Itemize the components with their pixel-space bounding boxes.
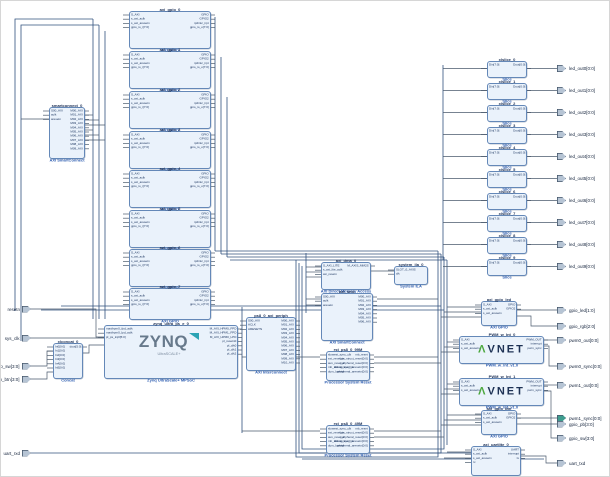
block-pin[interactable]: GPIO2 <box>506 416 515 420</box>
block-zynq_ultra_ps_e_0[interactable]: zynq_ultra_ps_e_0Zynq UltraScale+ MPSoCm… <box>104 325 238 379</box>
port-label: led_out2[0:0] <box>569 110 595 115</box>
block-pin[interactable]: gpio_io_i[7:0] <box>131 225 150 229</box>
block-system_ila_0[interactable]: system_ila_0System ILASLOT_0_AXISclk <box>394 266 428 285</box>
port-pentagon-icon <box>557 131 566 138</box>
block-pin[interactable]: Din[7:0] <box>489 107 499 111</box>
block-pin[interactable]: Dout[0:0] <box>513 195 525 199</box>
port-label: led_out4[0:0] <box>569 154 595 159</box>
port-label: led_out9[0:0] <box>569 264 595 269</box>
output-port-led_out5[0:0][interactable]: led_out5[0:0] <box>557 175 566 182</box>
port-pentagon-icon <box>22 335 31 342</box>
block-pin[interactable]: gpio_io_o[7:0] <box>190 146 209 150</box>
port-label: dip_sw[3:0] <box>0 364 20 369</box>
block-pin[interactable]: Dout[0:0] <box>513 173 525 177</box>
port-pentagon-icon <box>557 435 566 442</box>
block-xlslice_4[interactable]: xlslice_4SliceDin[7:0]Dout[0:0] <box>487 149 527 166</box>
block-axi_gpio_btn[interactable]: axi_gpio_btnAXI GPIOS_AXIs_axi_aclks_axi… <box>481 410 517 435</box>
block-pin[interactable]: pl_ps_irq0[5:0] <box>106 335 133 339</box>
port-pentagon-icon <box>557 307 566 314</box>
port-pentagon-icon <box>557 109 566 116</box>
port-label: gpio_led[1:0] <box>569 308 595 313</box>
port-label: push_btn[3:0] <box>0 377 20 382</box>
block-axi_uartlite_0[interactable]: axi_uartlite_0AXI UartliteS_AXIs_axi_acl… <box>471 446 521 476</box>
block-pin[interactable]: ARESETN <box>248 327 262 331</box>
block-pin[interactable]: s_axi_aresetn <box>483 311 502 315</box>
output-port-led_out3[0:0][interactable]: led_out3[0:0] <box>557 131 566 138</box>
block-xlslice_0[interactable]: xlslice_0SliceDin[7:0]Dout[0:0] <box>487 61 527 78</box>
block-xlslice_2[interactable]: xlslice_2SliceDin[7:0]Dout[0:0] <box>487 105 527 122</box>
block-pin[interactable]: gpio_io_i[7:0] <box>131 146 150 150</box>
block-pin[interactable]: Din[7:0] <box>489 173 499 177</box>
port-label: led_out1[0:0] <box>569 88 595 93</box>
block-pin[interactable]: s_axi_aresetn <box>483 420 502 424</box>
block-pin[interactable]: M10_AXI <box>282 361 294 365</box>
block-pin[interactable]: axi_resetn <box>323 272 343 276</box>
input-port-sys_clk[interactable]: sys_clk <box>22 335 31 342</box>
port-pentagon-icon <box>557 421 566 428</box>
block-pin[interactable]: Din[7:0] <box>489 261 499 265</box>
port-label: led_out6[0:0] <box>569 198 595 203</box>
block-axi_gpio_led[interactable]: axi_gpio_ledAXI GPIOS_AXIs_axi_aclks_axi… <box>481 301 517 326</box>
block-rst_ps8_0_49M[interactable]: rst_ps8_0_49MProcessor System Resetslowe… <box>326 425 370 454</box>
output-port-led_out0[0:0][interactable]: led_out0[0:0] <box>557 65 566 72</box>
block-ps8_0_axi_periph[interactable]: ps8_0_axi_periphAXI InterconnectS00_AXIA… <box>246 317 296 371</box>
block-smartconnect_0[interactable]: smartconnect_0AXI SmartConnectS00_AXIacl… <box>49 107 85 159</box>
port-pentagon-icon <box>557 241 566 248</box>
block-xlslice_1[interactable]: xlslice_1SliceDin[7:0]Dout[0:0] <box>487 83 527 100</box>
output-port-gpio_rgb[2:0][interactable]: gpio_rgb[2:0] <box>557 323 566 330</box>
input-port-push_btn[3:0][interactable]: push_btn[3:0] <box>22 376 31 383</box>
block-pin[interactable]: gpio_io_o[7:0] <box>190 185 209 189</box>
port-label: led_out8[0:0] <box>569 242 595 247</box>
port-label: pwm1_sync[0:0] <box>569 416 602 421</box>
block-pin[interactable]: Dout[0:0] <box>513 107 525 111</box>
block-xlslice_8[interactable]: xlslice_8SliceDin[7:0]Dout[0:0] <box>487 237 527 254</box>
output-port-gpio_sw[3:0][interactable]: gpio_sw[3:0] <box>557 435 566 442</box>
port-pentagon-icon <box>557 323 566 330</box>
output-port-led_out7[0:0][interactable]: led_out7[0:0] <box>557 219 566 226</box>
block-pin[interactable]: peripheral_aresetn[0:0] <box>334 370 368 374</box>
block-pin[interactable]: gpio_io_i[7:0] <box>131 66 150 70</box>
output-port-led_out9[0:0][interactable]: led_out9[0:0] <box>557 263 566 270</box>
port-label: pwm0_out[0:0] <box>569 338 599 343</box>
port-label: gpio_pb[3:0] <box>569 422 594 427</box>
port-label: uart_txd <box>569 461 585 466</box>
port-pentagon-icon <box>22 450 31 457</box>
block-pin[interactable]: gpio_io_i[7:0] <box>131 26 150 30</box>
block-pin[interactable]: gpio_io_i[7:0] <box>131 303 150 307</box>
output-port-pwm0_out[0:0][interactable]: pwm0_out[0:0] <box>557 337 566 344</box>
block-pin[interactable]: Din[7:0] <box>489 151 499 155</box>
output-port-pwm0_sync[0:0][interactable]: pwm0_sync[0:0] <box>557 363 566 370</box>
block-pin[interactable]: Din[7:0] <box>489 217 499 221</box>
block-pin[interactable]: Dout[0:0] <box>513 217 525 221</box>
output-port-gpio_pb[3:0][interactable]: gpio_pb[3:0] <box>557 421 566 428</box>
output-port-led_out4[0:0][interactable]: led_out4[0:0] <box>557 153 566 160</box>
block-pin[interactable]: Din[7:0] <box>489 85 499 89</box>
port-pentagon-icon <box>557 337 566 344</box>
block-pin[interactable]: aresetn <box>323 303 335 307</box>
block-pin[interactable]: pl_clk2 <box>209 352 236 356</box>
output-port-led_out2[0:0][interactable]: led_out2[0:0] <box>557 109 566 116</box>
output-port-led_out8[0:0][interactable]: led_out8[0:0] <box>557 241 566 248</box>
block-xlslice_6[interactable]: xlslice_6SliceDin[7:0]Dout[0:0] <box>487 193 527 210</box>
port-pentagon-icon <box>557 65 566 72</box>
block-pin[interactable]: M09_AXI <box>71 147 83 151</box>
block-pin[interactable]: gpio_io_o[7:0] <box>190 303 209 307</box>
port-pentagon-icon <box>557 87 566 94</box>
port-label: resetn <box>7 307 20 312</box>
port-label: led_out7[0:0] <box>569 220 595 225</box>
block-pin[interactable]: peripheral_aresetn[0:0] <box>334 444 368 448</box>
port-label: uart_rxd <box>3 451 20 456</box>
port-label: sys_clk <box>5 336 20 341</box>
port-label: led_out3[0:0] <box>569 132 595 137</box>
avnet-mark-icon: Λ <box>478 386 487 398</box>
input-port-uart_rxd[interactable]: uart_rxd <box>22 450 31 457</box>
block-axi_gpio_6[interactable]: axi_gpio_6AXI GPIOS_AXIs_axi_aclks_axi_a… <box>129 249 211 287</box>
block-axi_gpio_2[interactable]: axi_gpio_2AXI GPIOS_AXIs_axi_aclks_axi_a… <box>129 91 211 129</box>
block-axi_gpio_0[interactable]: axi_gpio_0AXI GPIOS_AXIs_axi_aclks_axi_a… <box>129 11 211 49</box>
avnet-mark-icon: Λ <box>478 344 487 356</box>
port-pentagon-icon <box>557 197 566 204</box>
block-pin[interactable]: Din[7:0] <box>489 63 499 67</box>
port-pentagon-icon <box>557 219 566 226</box>
port-pentagon-icon <box>557 263 566 270</box>
block-axi_gpio_3[interactable]: axi_gpio_3AXI GPIOS_AXIs_axi_aclks_axi_a… <box>129 131 211 169</box>
zynq-logo: ZYNQUltraSCALE+ <box>131 333 207 360</box>
block-pin[interactable]: gpio_io_i[7:0] <box>131 185 150 189</box>
block-pin[interactable]: gpio_io_o[7:0] <box>190 106 209 110</box>
block-pin[interactable]: In5[0:0] <box>55 366 65 370</box>
block-pin[interactable]: Dout[0:0] <box>513 261 525 265</box>
port-label: pwm1_out[0:0] <box>569 383 599 388</box>
block-pin[interactable]: gpio_io_i[7:0] <box>131 264 150 268</box>
output-port-gpio_led[1:0][interactable]: gpio_led[1:0] <box>557 307 566 314</box>
block-pin[interactable]: clk <box>396 272 416 276</box>
block-xlslice_3[interactable]: xlslice_3SliceDin[7:0]Dout[0:0] <box>487 127 527 144</box>
block-pin[interactable]: gpio_io_o[7:0] <box>190 66 209 70</box>
block-rst_ps8_0_99M[interactable]: rst_ps8_0_99MProcessor System Resetslowe… <box>326 351 370 381</box>
output-port-led_out1[0:0][interactable]: led_out1[0:0] <box>557 87 566 94</box>
block-pin[interactable]: Din[7:0] <box>489 195 499 199</box>
block-PWM_w_Int_0[interactable]: PWM_w_Int_0PWM_w_Int_v1.0S_AXIs_axi_aclk… <box>459 336 544 364</box>
block-axi_gpio_1[interactable]: axi_gpio_1AXI GPIOS_AXIs_axi_aclks_axi_a… <box>129 51 211 89</box>
block-pin[interactable]: aresetn <box>51 117 63 121</box>
block-pin[interactable]: s_axi_aresetn <box>473 456 492 460</box>
block-pin[interactable]: Dout[0:0] <box>513 85 525 89</box>
block-pin[interactable]: gpio_io_o[7:0] <box>190 225 209 229</box>
block-pin[interactable]: Dout[0:0] <box>513 151 525 155</box>
block-pin[interactable]: gpio_io_i[7:0] <box>131 106 150 110</box>
output-port-uart_txd[interactable]: uart_txd <box>557 460 566 467</box>
block-pin[interactable]: tx <box>508 456 519 460</box>
block-pin[interactable]: GPIO2 <box>506 307 515 311</box>
port-label: gpio_rgb[2:0] <box>569 324 595 329</box>
block-pin[interactable]: rx <box>473 461 492 465</box>
block-axi_dma_0[interactable]: axi_dma_0AXI Direct Memory AccessS_AXI_L… <box>321 262 371 290</box>
port-pentagon-icon <box>22 363 31 370</box>
block-xlslice_7[interactable]: xlslice_7SliceDin[7:0]Dout[0:0] <box>487 215 527 232</box>
output-port-pwm1_out[0:0][interactable]: pwm1_out[0:0] <box>557 382 566 389</box>
port-pentagon-icon <box>557 363 566 370</box>
block-pin[interactable]: M06_AXI <box>359 320 371 324</box>
block-pin[interactable]: Din[7:0] <box>489 129 499 133</box>
block-xlslice_5[interactable]: xlslice_5SliceDin[7:0]Dout[0:0] <box>487 171 527 188</box>
avnet-logo: ΛVNET <box>474 387 529 398</box>
block-axi_gpio_4[interactable]: axi_gpio_4AXI GPIOS_AXIs_axi_aclks_axi_a… <box>129 170 211 208</box>
port-pentagon-icon <box>22 306 31 313</box>
block-design-canvas: smartconnect_0AXI SmartConnectS00_AXIacl… <box>0 0 610 477</box>
block-pin[interactable]: Dout[0:0] <box>513 63 525 67</box>
avnet-logo: ΛVNET <box>474 345 529 356</box>
port-pentagon-icon <box>557 460 566 467</box>
port-label: gpio_sw[3:0] <box>569 436 594 441</box>
port-pentagon-icon <box>557 153 566 160</box>
output-port-led_out6[0:0][interactable]: led_out6[0:0] <box>557 197 566 204</box>
block-pin[interactable]: gpio_io_o[7:0] <box>190 264 209 268</box>
block-xlslice_9[interactable]: xlslice_9SliceDin[7:0]Dout[0:0] <box>487 259 527 276</box>
block-pin[interactable]: M_AXIS_MM2S <box>348 264 369 268</box>
block-pin[interactable]: dout[5:0] <box>69 345 81 349</box>
block-xlconcat_0[interactable]: xlconcat_0ConcatIn0[0:0]In1[0:0]In2[0:0]… <box>53 343 83 379</box>
input-port-dip_sw[3:0][interactable]: dip_sw[3:0] <box>22 363 31 370</box>
port-pentagon-icon <box>557 175 566 182</box>
port-label: led_out5[0:0] <box>569 176 595 181</box>
block-pin[interactable]: gpio_io_o[7:0] <box>190 26 209 30</box>
block-axi_gpio_5[interactable]: axi_gpio_5AXI GPIOS_AXIs_axi_aclks_axi_a… <box>129 210 211 248</box>
port-pentagon-icon <box>22 376 31 383</box>
block-axi_smc[interactable]: axi_smcAXI SmartConnectS00_AXIaclkareset… <box>321 293 373 341</box>
block-pin[interactable]: Din[7:0] <box>489 239 499 243</box>
input-port-resetn[interactable]: resetn <box>22 306 31 313</box>
block-pin[interactable]: Dout[0:0] <box>513 239 525 243</box>
port-pentagon-icon <box>557 382 566 389</box>
port-label: pwm0_sync[0:0] <box>569 364 602 369</box>
port-label: led_out0[0:0] <box>569 66 595 71</box>
zynq-swoosh-icon <box>189 333 199 340</box>
block-PWM_w_Int_1[interactable]: PWM_w_Int_1PWM_w_Int_v1.0S_AXIs_axi_aclk… <box>459 378 544 406</box>
block-pin[interactable]: Dout[0:0] <box>513 129 525 133</box>
block-axi_gpio_7[interactable]: axi_gpio_7AXI GPIOS_AXIs_axi_aclks_axi_a… <box>129 288 211 320</box>
